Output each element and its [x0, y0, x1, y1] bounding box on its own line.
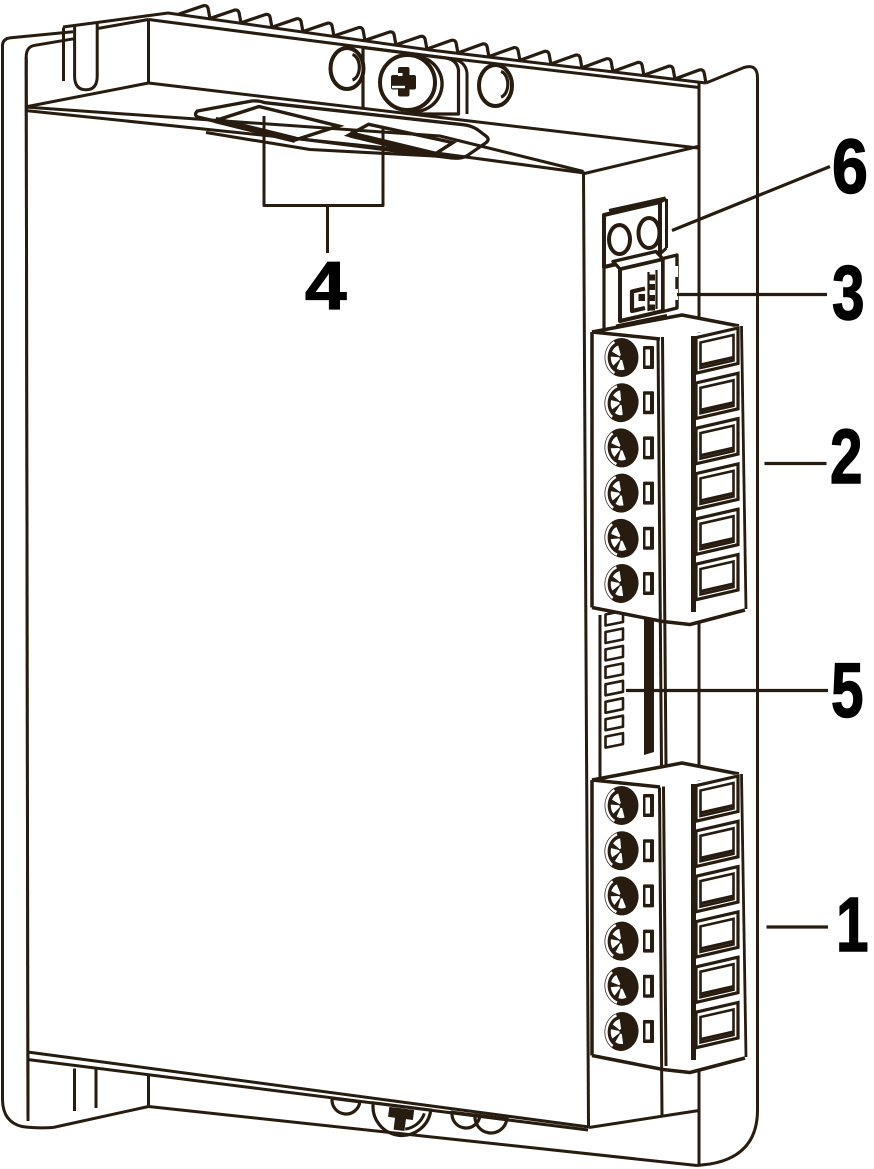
svg-text:2: 2 — [830, 414, 863, 500]
svg-text:3: 3 — [832, 250, 865, 336]
svg-text:1: 1 — [836, 882, 869, 968]
svg-text:6: 6 — [832, 125, 868, 211]
svg-text:4: 4 — [305, 248, 347, 324]
svg-text:5: 5 — [831, 648, 864, 734]
